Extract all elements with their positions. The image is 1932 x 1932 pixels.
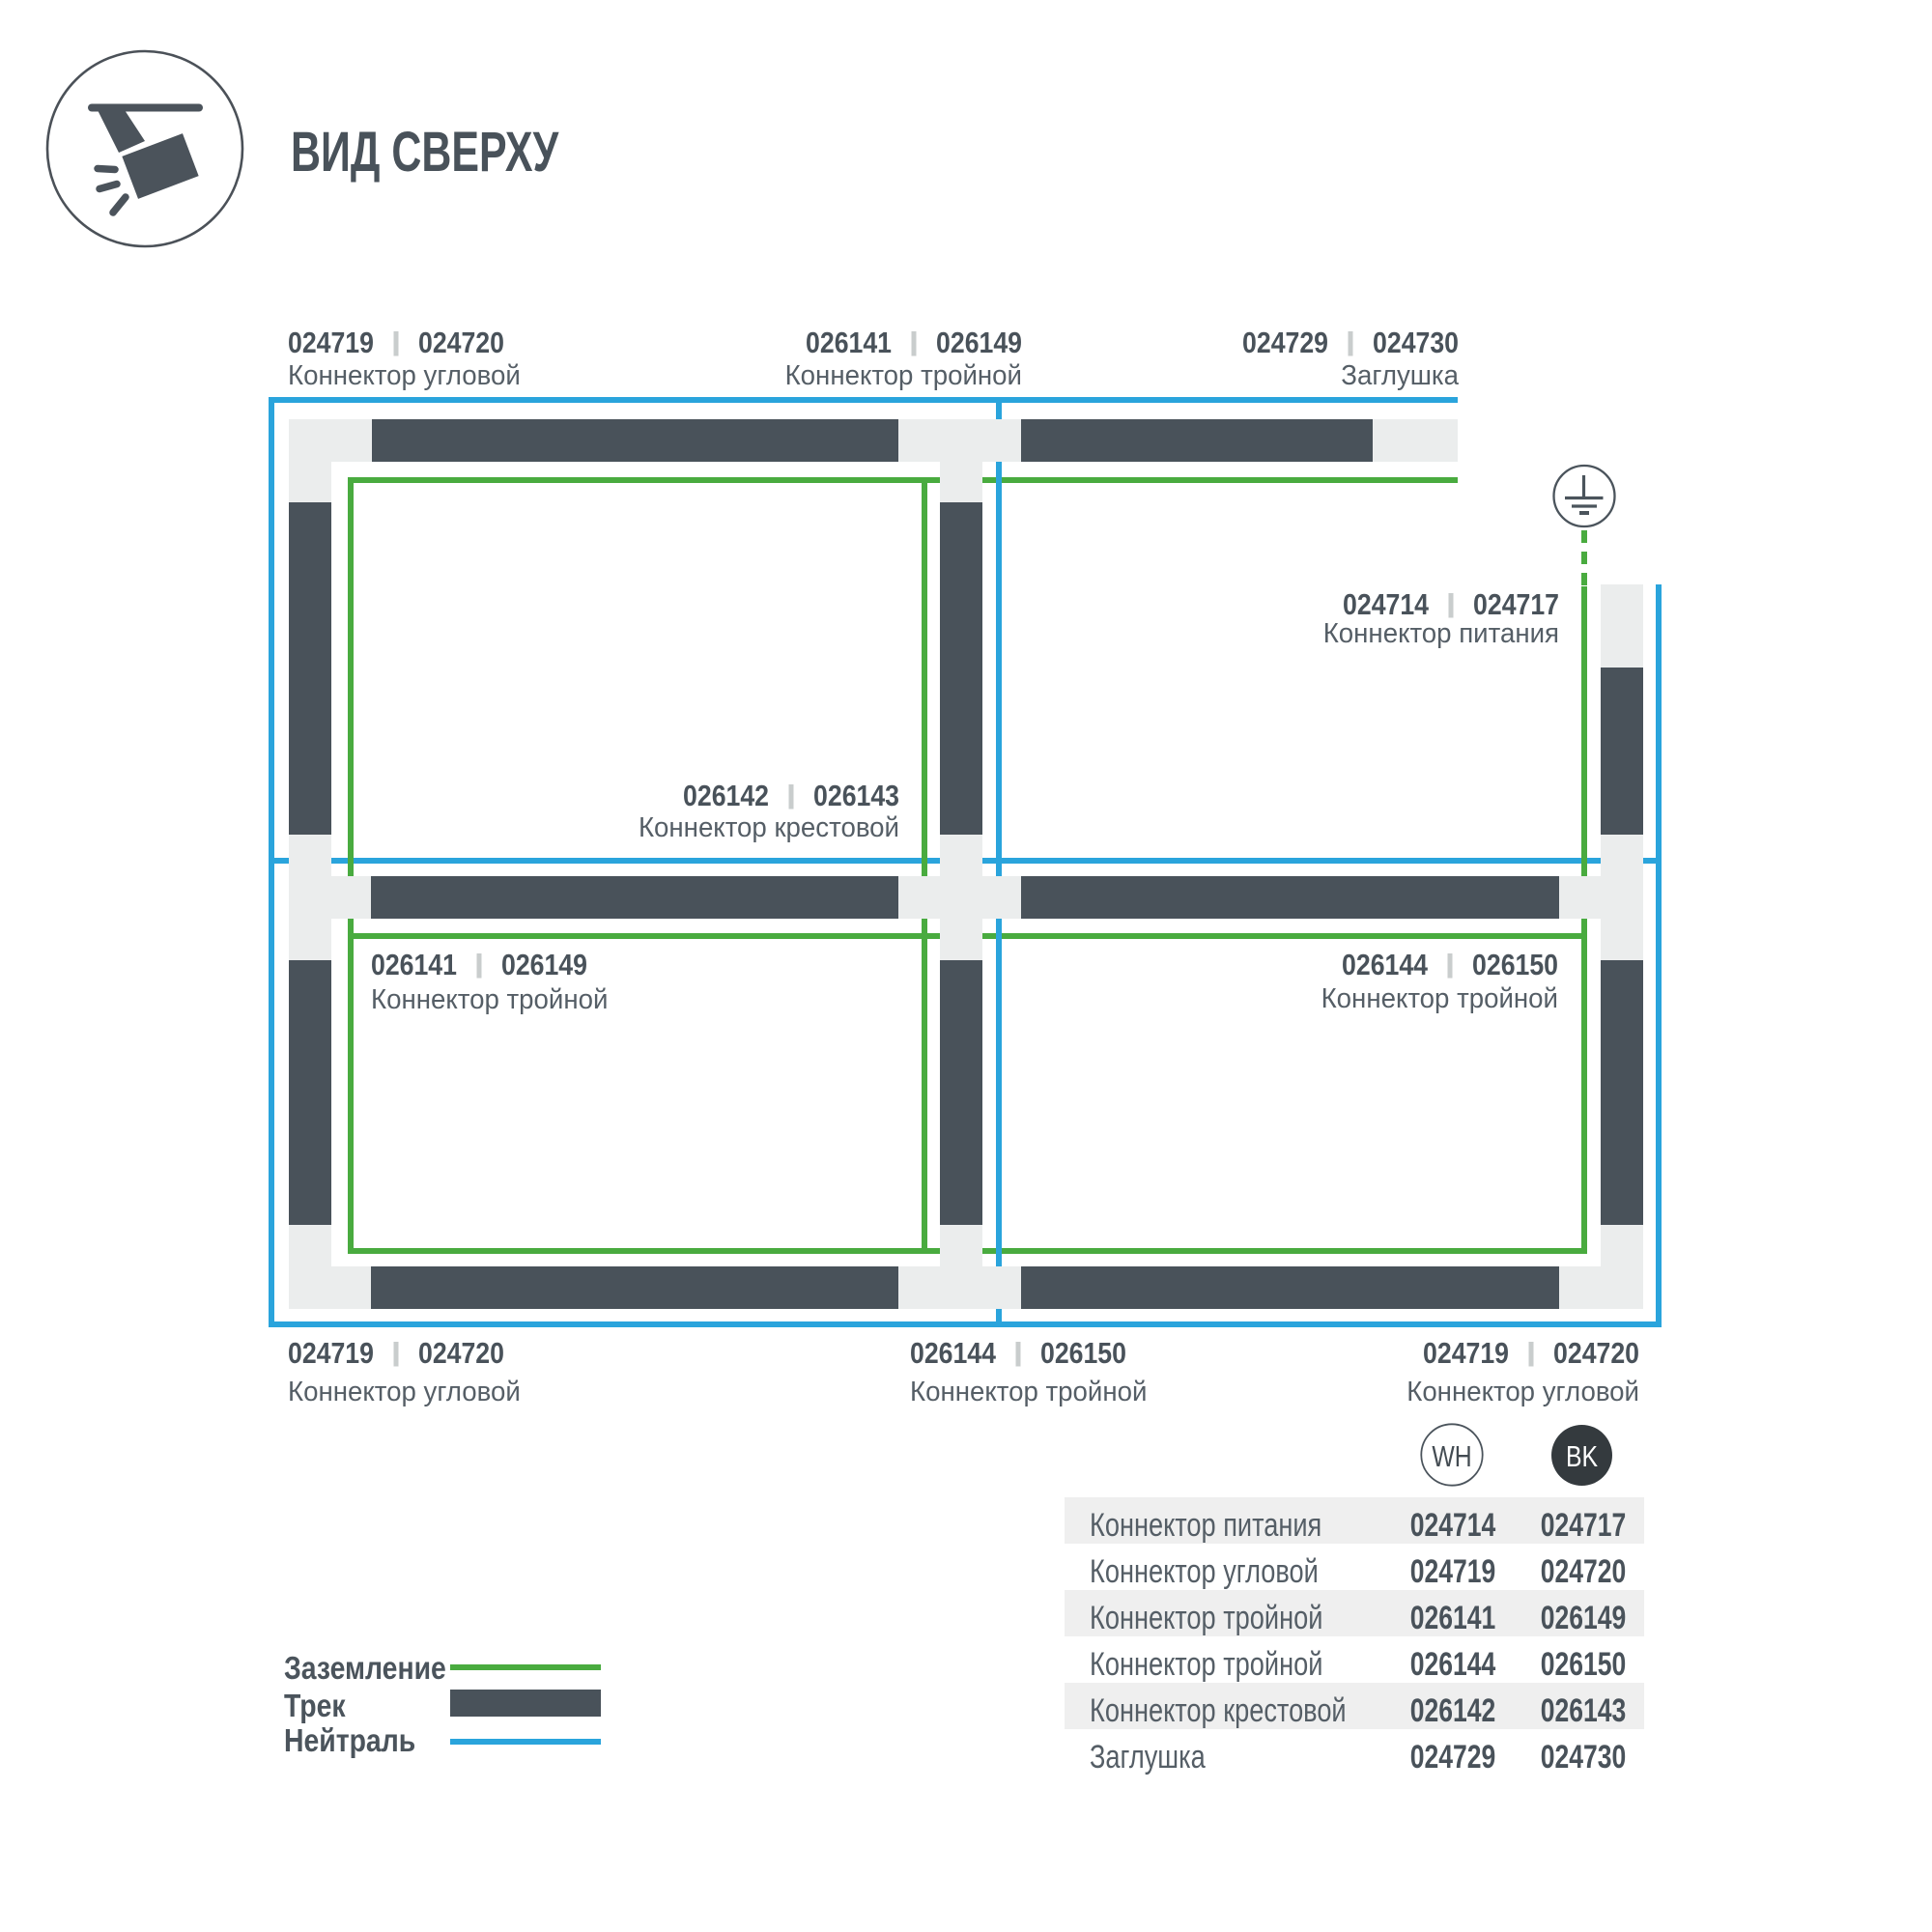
svg-text:Коннектор угловой: Коннектор угловой [288, 1377, 521, 1406]
svg-text:024720: 024720 [418, 327, 504, 359]
svg-text:026141: 026141 [1410, 1600, 1496, 1636]
svg-text:Коннектор крестовой: Коннектор крестовой [639, 812, 899, 842]
svg-text:026144: 026144 [1342, 949, 1428, 981]
svg-text:ВИД СВЕРХУ: ВИД СВЕРХУ [291, 121, 559, 184]
svg-text:024729: 024729 [1410, 1739, 1495, 1776]
svg-text:026142: 026142 [683, 780, 769, 812]
svg-text:Коннектор тройной: Коннектор тройной [910, 1377, 1147, 1406]
svg-text:Коннектор питания: Коннектор питания [1090, 1506, 1321, 1544]
svg-text:Коннектор тройной: Коннектор тройной [1321, 983, 1558, 1013]
svg-text:024730: 024730 [1541, 1739, 1626, 1776]
svg-text:026142: 026142 [1410, 1692, 1495, 1729]
svg-text:024714: 024714 [1343, 588, 1429, 621]
svg-text:024730: 024730 [1373, 327, 1459, 359]
svg-text:026150: 026150 [1040, 1337, 1126, 1370]
svg-text:Коннектор угловой: Коннектор угловой [1406, 1377, 1639, 1406]
svg-text:Коннектор угловой: Коннектор угловой [288, 360, 521, 390]
svg-text:Коннектор тройной: Коннектор тройной [371, 984, 608, 1014]
svg-text:024719: 024719 [288, 1337, 374, 1370]
svg-text:Коннектор угловой: Коннектор угловой [1090, 1552, 1319, 1590]
svg-text:024720: 024720 [1553, 1337, 1639, 1370]
svg-text:024719: 024719 [1423, 1337, 1509, 1370]
svg-text:Коннектор крестовой: Коннектор крестовой [1090, 1691, 1347, 1729]
svg-text:026144: 026144 [910, 1337, 996, 1370]
svg-text:WH: WH [1432, 1439, 1471, 1472]
svg-text:Заземление: Заземление [284, 1650, 446, 1687]
svg-text:024729: 024729 [1242, 327, 1328, 359]
svg-text:Заглушка: Заглушка [1341, 360, 1459, 390]
svg-text:BK: BK [1566, 1439, 1598, 1472]
svg-text:Коннектор тройной: Коннектор тройной [1090, 1645, 1322, 1683]
svg-text:024717: 024717 [1473, 588, 1559, 621]
svg-text:024719: 024719 [1410, 1553, 1495, 1590]
svg-text:026141: 026141 [371, 949, 457, 981]
svg-text:026149: 026149 [936, 327, 1022, 359]
svg-text:026150: 026150 [1541, 1646, 1626, 1683]
svg-text:026150: 026150 [1472, 949, 1558, 981]
svg-text:Нейтраль: Нейтраль [284, 1722, 415, 1759]
svg-text:024720: 024720 [1541, 1553, 1626, 1590]
svg-text:026149: 026149 [501, 949, 587, 981]
svg-text:Коннектор тройной: Коннектор тройной [785, 360, 1022, 390]
svg-text:026149: 026149 [1541, 1600, 1626, 1636]
svg-text:026141: 026141 [806, 327, 892, 359]
svg-text:026144: 026144 [1410, 1646, 1496, 1683]
svg-text:026143: 026143 [813, 780, 899, 812]
svg-text:024719: 024719 [288, 327, 374, 359]
svg-text:Коннектор питания: Коннектор питания [1323, 618, 1559, 648]
svg-text:024720: 024720 [418, 1337, 504, 1370]
svg-text:Трек: Трек [284, 1688, 346, 1724]
svg-text:Заглушка: Заглушка [1090, 1738, 1206, 1776]
svg-text:026143: 026143 [1541, 1692, 1626, 1729]
svg-text:024717: 024717 [1541, 1507, 1626, 1544]
svg-text:Коннектор тройной: Коннектор тройной [1090, 1599, 1322, 1636]
svg-text:024714: 024714 [1410, 1507, 1496, 1544]
